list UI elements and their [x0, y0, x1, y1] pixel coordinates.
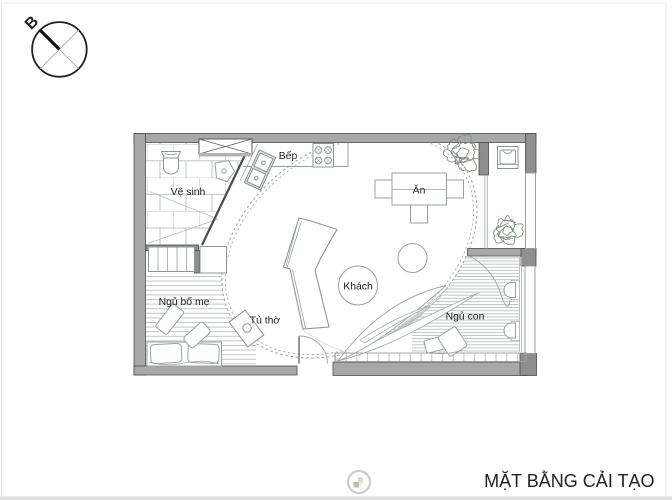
svg-text:Ăn: Ăn: [413, 184, 426, 197]
svg-text:MẶT BẰNG CẢI TẠO: MẶT BẰNG CẢI TẠO: [484, 470, 654, 491]
svg-text:Bếp: Bếp: [279, 150, 298, 162]
svg-text:Khách: Khách: [343, 282, 373, 293]
svg-text:Vệ sinh: Vệ sinh: [171, 187, 206, 198]
svg-text:Ngủ bố mẹ: Ngủ bố mẹ: [159, 296, 210, 308]
svg-text:Tủ thờ: Tủ thờ: [250, 315, 281, 327]
svg-text:Ngủ con: Ngủ con: [446, 311, 485, 323]
